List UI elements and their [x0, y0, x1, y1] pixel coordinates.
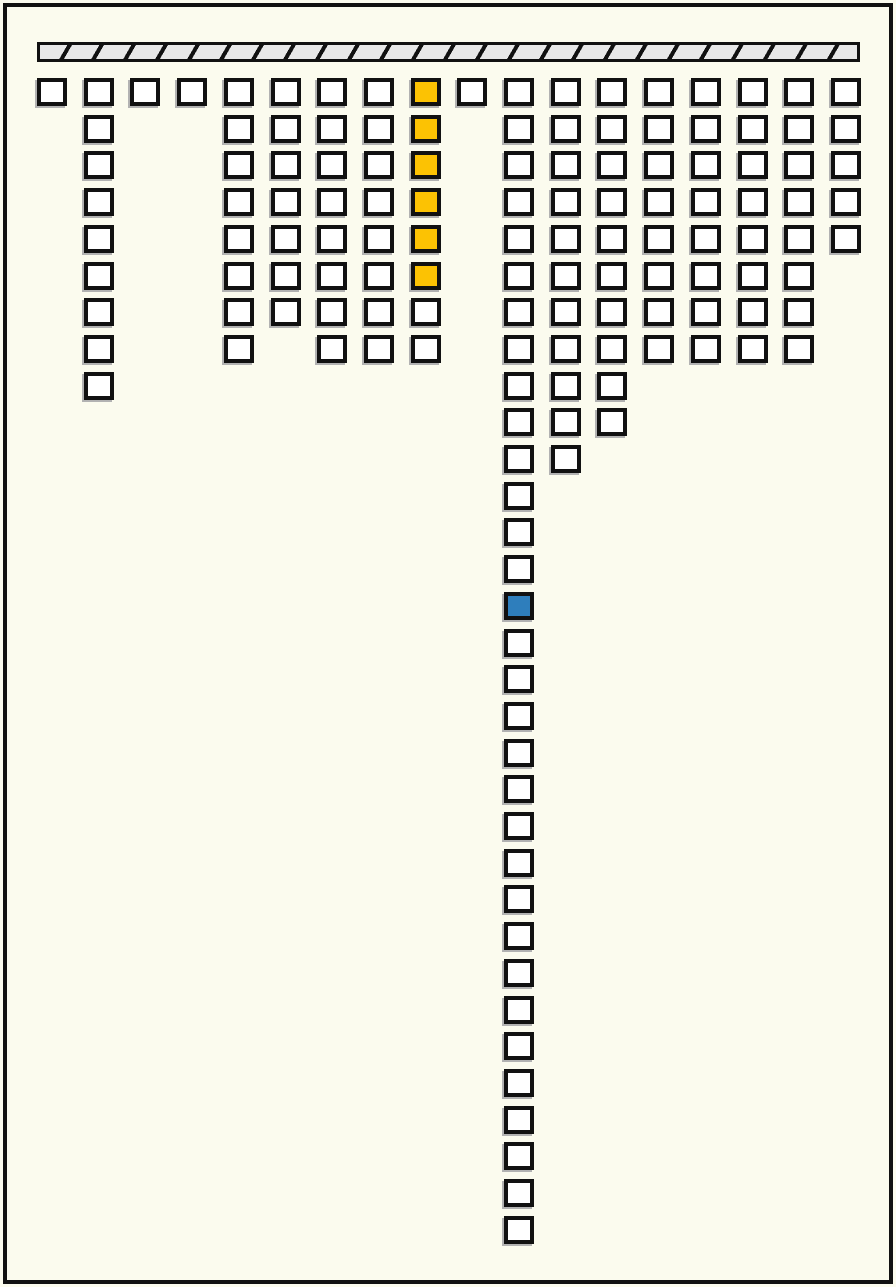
cell-col8-row3 [364, 151, 394, 179]
cell-col9-row5 [411, 225, 441, 253]
cell-col11-row2 [504, 115, 534, 143]
cell-col14-row2 [644, 115, 674, 143]
cell-col8-row5 [364, 225, 394, 253]
cell-col11-row26 [504, 996, 534, 1024]
cell-col17-row1 [784, 78, 814, 106]
cell-col18-row4 [831, 188, 861, 216]
cell-col2-row9 [84, 372, 114, 400]
cell-col13-row3 [597, 151, 627, 179]
cell-col10-row1 [457, 78, 487, 106]
cell-col17-row2 [784, 115, 814, 143]
cell-col14-row6 [644, 262, 674, 290]
cell-col8-row2 [364, 115, 394, 143]
cell-col9-row7 [411, 298, 441, 326]
cell-col11-row32 [504, 1216, 534, 1244]
cell-col2-row4 [84, 188, 114, 216]
cell-col2-row3 [84, 151, 114, 179]
cell-col5-row6 [224, 262, 254, 290]
cell-col16-row7 [738, 298, 768, 326]
cell-col3-row1 [130, 78, 160, 106]
cell-col16-row6 [738, 262, 768, 290]
cell-col9-row4 [411, 188, 441, 216]
cell-col16-row8 [738, 335, 768, 363]
cell-col11-row19 [504, 739, 534, 767]
cell-col11-row1 [504, 78, 534, 106]
cell-col11-row17 [504, 665, 534, 693]
cell-col9-row6 [411, 262, 441, 290]
cell-col2-row2 [84, 115, 114, 143]
cell-col13-row2 [597, 115, 627, 143]
cell-col7-row2 [317, 115, 347, 143]
cell-col16-row2 [738, 115, 768, 143]
cell-col11-row28 [504, 1069, 534, 1097]
cell-col6-row1 [271, 78, 301, 106]
cell-col5-row4 [224, 188, 254, 216]
cell-col15-row2 [691, 115, 721, 143]
cell-col11-row10 [504, 408, 534, 436]
cell-col2-row6 [84, 262, 114, 290]
cell-col2-row7 [84, 298, 114, 326]
cell-col18-row2 [831, 115, 861, 143]
cell-col11-row23 [504, 885, 534, 913]
cell-col14-row1 [644, 78, 674, 106]
cell-col11-row30 [504, 1142, 534, 1170]
cell-col11-row7 [504, 298, 534, 326]
cell-col13-row7 [597, 298, 627, 326]
cell-col11-row14 [504, 555, 534, 583]
cell-col11-row25 [504, 959, 534, 987]
cell-col14-row5 [644, 225, 674, 253]
cell-col11-row3 [504, 151, 534, 179]
cell-col16-row3 [738, 151, 768, 179]
cell-col11-row5 [504, 225, 534, 253]
board [0, 0, 896, 1287]
cell-col11-row31 [504, 1179, 534, 1207]
cell-col5-row8 [224, 335, 254, 363]
cell-col2-row8 [84, 335, 114, 363]
cell-col11-row24 [504, 922, 534, 950]
cell-col11-row15 [504, 592, 534, 620]
cell-col11-row13 [504, 518, 534, 546]
cell-col12-row11 [551, 445, 581, 473]
cell-col12-row7 [551, 298, 581, 326]
cell-col6-row6 [271, 262, 301, 290]
cell-col5-row5 [224, 225, 254, 253]
cell-col17-row5 [784, 225, 814, 253]
cell-col18-row5 [831, 225, 861, 253]
cell-col15-row8 [691, 335, 721, 363]
cell-col6-row3 [271, 151, 301, 179]
cell-col17-row6 [784, 262, 814, 290]
cell-col12-row2 [551, 115, 581, 143]
cell-col11-row6 [504, 262, 534, 290]
cell-col12-row10 [551, 408, 581, 436]
cell-col12-row5 [551, 225, 581, 253]
cell-col11-row12 [504, 482, 534, 510]
cell-col15-row3 [691, 151, 721, 179]
cell-col13-row6 [597, 262, 627, 290]
cell-col14-row8 [644, 335, 674, 363]
cell-col17-row8 [784, 335, 814, 363]
cell-col14-row7 [644, 298, 674, 326]
cell-col11-row29 [504, 1106, 534, 1134]
cell-col8-row6 [364, 262, 394, 290]
cell-col6-row5 [271, 225, 301, 253]
cell-col9-row2 [411, 115, 441, 143]
cell-col5-row1 [224, 78, 254, 106]
cell-col2-row1 [84, 78, 114, 106]
cell-col16-row5 [738, 225, 768, 253]
cell-col18-row3 [831, 151, 861, 179]
cell-col11-row21 [504, 812, 534, 840]
cell-col11-row9 [504, 372, 534, 400]
cell-col11-row8 [504, 335, 534, 363]
cell-col15-row7 [691, 298, 721, 326]
cell-col13-row10 [597, 408, 627, 436]
cell-col11-row4 [504, 188, 534, 216]
cell-col17-row3 [784, 151, 814, 179]
cell-col1-row1 [37, 78, 67, 106]
cell-col4-row1 [177, 78, 207, 106]
cell-col12-row4 [551, 188, 581, 216]
cell-col7-row5 [317, 225, 347, 253]
cell-col12-row9 [551, 372, 581, 400]
cell-col7-row7 [317, 298, 347, 326]
cell-col14-row3 [644, 151, 674, 179]
cell-col13-row9 [597, 372, 627, 400]
cell-col13-row5 [597, 225, 627, 253]
cell-col8-row1 [364, 78, 394, 106]
cell-col2-row5 [84, 225, 114, 253]
cell-col13-row1 [597, 78, 627, 106]
cell-col6-row2 [271, 115, 301, 143]
cell-col11-row16 [504, 629, 534, 657]
cell-col12-row8 [551, 335, 581, 363]
cell-col16-row1 [738, 78, 768, 106]
cell-col13-row4 [597, 188, 627, 216]
cell-col17-row4 [784, 188, 814, 216]
cell-col7-row8 [317, 335, 347, 363]
cell-col16-row4 [738, 188, 768, 216]
cell-col15-row6 [691, 262, 721, 290]
cell-col13-row8 [597, 335, 627, 363]
cell-col11-row20 [504, 775, 534, 803]
cell-col6-row7 [271, 298, 301, 326]
cell-col12-row1 [551, 78, 581, 106]
cell-col8-row4 [364, 188, 394, 216]
cell-col11-row27 [504, 1032, 534, 1060]
cell-col5-row2 [224, 115, 254, 143]
cell-col12-row3 [551, 151, 581, 179]
cell-col18-row1 [831, 78, 861, 106]
cell-col17-row7 [784, 298, 814, 326]
cell-col15-row1 [691, 78, 721, 106]
cell-col7-row4 [317, 188, 347, 216]
cell-col11-row22 [504, 849, 534, 877]
cell-col5-row3 [224, 151, 254, 179]
cell-col15-row5 [691, 225, 721, 253]
cell-col9-row1 [411, 78, 441, 106]
diagram-stage [0, 0, 896, 1287]
cell-col14-row4 [644, 188, 674, 216]
cell-col8-row8 [364, 335, 394, 363]
cell-col6-row4 [271, 188, 301, 216]
cell-col11-row18 [504, 702, 534, 730]
cell-col7-row6 [317, 262, 347, 290]
cell-col7-row3 [317, 151, 347, 179]
cell-col12-row6 [551, 262, 581, 290]
cell-col9-row8 [411, 335, 441, 363]
cell-col7-row1 [317, 78, 347, 106]
cell-col11-row11 [504, 445, 534, 473]
cell-col15-row4 [691, 188, 721, 216]
cell-col5-row7 [224, 298, 254, 326]
cell-col9-row3 [411, 151, 441, 179]
cell-col8-row7 [364, 298, 394, 326]
